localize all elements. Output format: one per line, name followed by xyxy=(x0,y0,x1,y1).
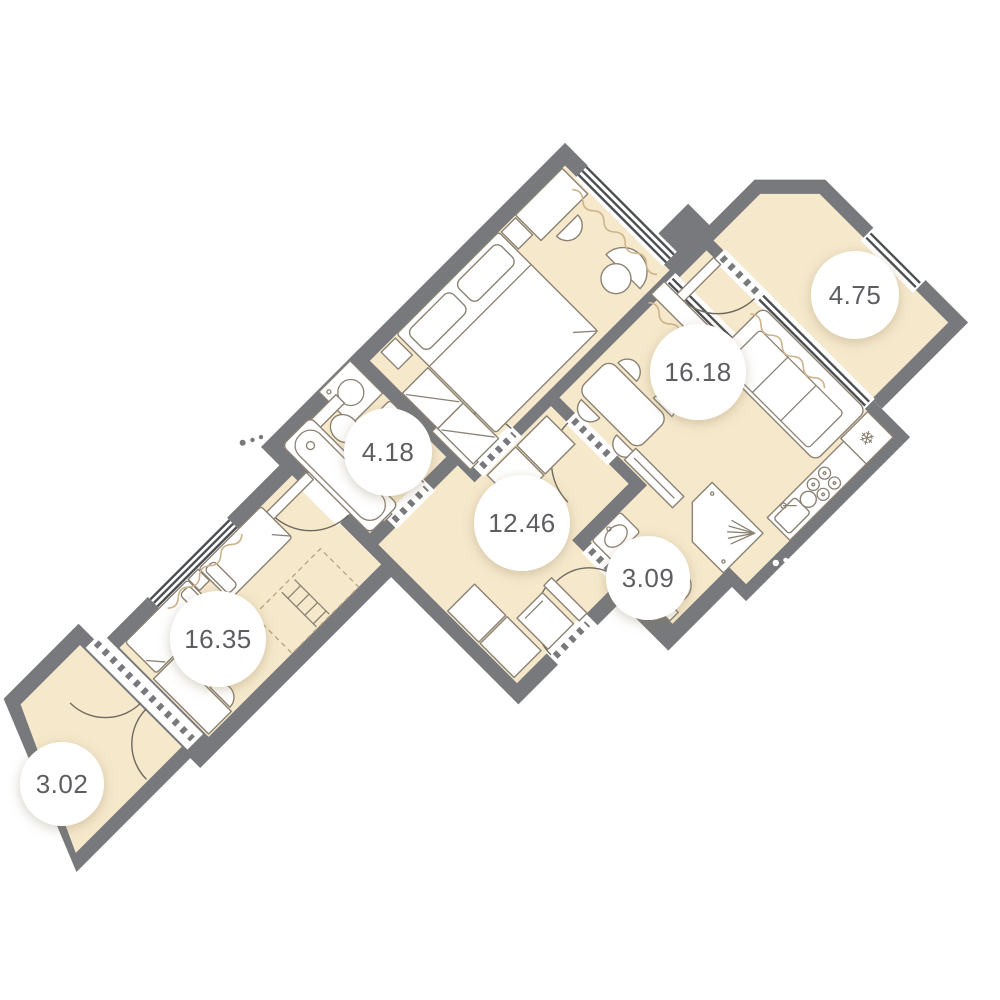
room-area-value: 4.18 xyxy=(362,437,415,467)
room-label-living-kitchen: 16.18 xyxy=(650,324,746,420)
floor-plan-page: ❄ xyxy=(0,0,1000,1000)
room-label-balcony-large: 4.75 xyxy=(811,251,899,339)
room-label-wc: 3.09 xyxy=(606,536,690,620)
room-label-bedroom: 16.35 xyxy=(170,591,266,687)
room-area-value: 4.75 xyxy=(829,280,882,310)
room-area-value: 3.09 xyxy=(622,563,675,593)
room-label-hallway: 12.46 xyxy=(474,475,570,571)
room-area-value: 16.35 xyxy=(184,624,252,654)
room-area-value: 12.46 xyxy=(488,508,556,538)
room-area-value: 3.02 xyxy=(36,769,89,799)
room-label-bathroom: 4.18 xyxy=(344,408,432,496)
room-label-balcony-small: 3.02 xyxy=(20,742,104,826)
room-area-value: 16.18 xyxy=(664,357,732,387)
floor-plan-canvas: ❄ xyxy=(0,0,1000,1000)
